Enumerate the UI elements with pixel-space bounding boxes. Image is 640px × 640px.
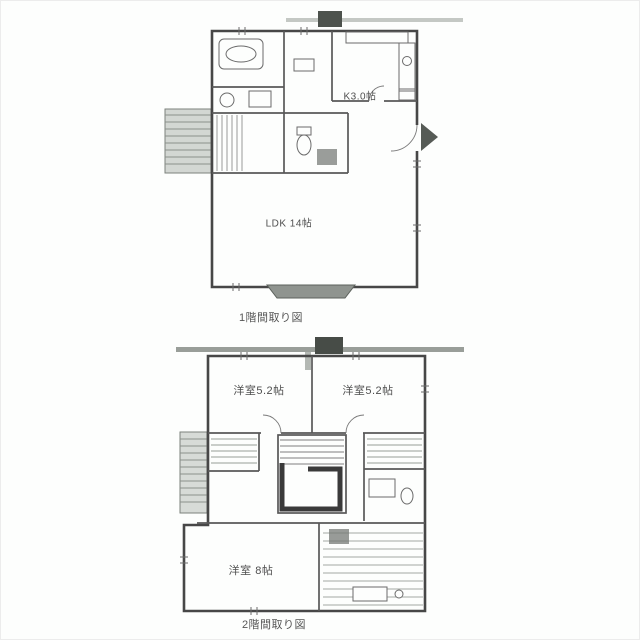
- bathtub: [219, 39, 263, 69]
- entrance-arrow: [421, 123, 438, 151]
- first-floor-caption: 1階間取り図: [239, 309, 303, 325]
- roof-hatch-area: [323, 529, 423, 605]
- large-bedroom-label: 洋室 8帖: [229, 562, 274, 578]
- floor-plan-scan: K3.0帖 LDK 14帖 1階間取り図 洋室5.2帖 洋室5.2帖 洋室 8帖…: [0, 0, 640, 640]
- stairs-floor1: [217, 115, 242, 171]
- closet-left-hatch: [211, 439, 257, 463]
- balcony-hatch: [180, 432, 207, 513]
- hall-shelf: [294, 59, 314, 71]
- ldk-label: LDK 14帖: [266, 215, 313, 230]
- second-floor-plan: [176, 337, 464, 615]
- wash-basin: [249, 91, 271, 107]
- floorplan-linework: [1, 1, 640, 640]
- washing-machine: [220, 93, 234, 107]
- stamp-mark: [315, 337, 343, 354]
- second-floor-caption: 2階間取り図: [242, 616, 306, 632]
- toilet-floor1: [297, 127, 337, 165]
- deck-porch: [267, 285, 355, 298]
- stamp-mark: [318, 11, 342, 27]
- closet-right-hatch: [367, 439, 422, 463]
- stairs-floor2: [280, 440, 344, 509]
- porch-hatch: [165, 109, 211, 173]
- first-floor-plan: [165, 11, 463, 298]
- kitchen-label: K3.0帖: [343, 88, 376, 103]
- bedroom-right-label: 洋室5.2帖: [342, 382, 393, 398]
- toilet-floor2: [369, 479, 413, 504]
- bedroom-left-label: 洋室5.2帖: [233, 382, 284, 398]
